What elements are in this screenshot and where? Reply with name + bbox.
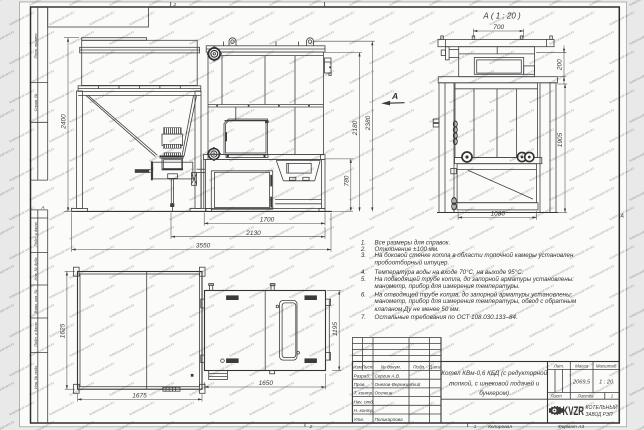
svg-text:Инв. № подл.: Инв. № подл.	[33, 365, 38, 389]
svg-text:1905: 1905	[557, 132, 564, 147]
svg-text:Поликарпова: Поликарпова	[375, 417, 404, 422]
svg-text:Лист: Лист	[361, 364, 374, 369]
svg-text:6.: 6.	[361, 292, 366, 299]
svg-text:3550: 3550	[196, 243, 211, 250]
svg-text:2069,5: 2069,5	[572, 380, 591, 386]
svg-text:Утв.: Утв.	[354, 417, 364, 422]
svg-text:Сергин А.В.: Сергин А.В.	[375, 373, 401, 378]
svg-text:1700: 1700	[260, 217, 275, 224]
svg-text:Масштаб: Масштаб	[596, 363, 617, 368]
svg-text:Взам. инв. №: Взам. инв. №	[33, 289, 38, 314]
svg-text:3.: 3.	[361, 252, 366, 259]
svg-text:7.: 7.	[361, 314, 366, 321]
svg-text:2380: 2380	[365, 115, 372, 131]
svg-text:1650: 1650	[259, 380, 274, 387]
svg-text:2400: 2400	[60, 114, 67, 130]
svg-text:бункером): бункером)	[479, 389, 509, 397]
svg-text:А: А	[41, 205, 45, 210]
svg-text:5.: 5.	[361, 276, 366, 283]
svg-text:манометр, прибор для измерения: манометр, прибор для измерения температу…	[375, 298, 577, 305]
svg-text:Нач. отд.: Нач. отд.	[354, 399, 375, 404]
svg-text:700: 700	[493, 24, 504, 31]
svg-text:200: 200	[557, 59, 564, 71]
svg-text:2: 2	[309, 424, 313, 430]
svg-text:780: 780	[343, 175, 350, 186]
svg-text:1675: 1675	[132, 393, 147, 400]
svg-text:Перв. примен.: Перв. примен.	[33, 33, 38, 59]
svg-text:2: 2	[173, 2, 177, 8]
svg-text:манометр, прибор для измерения: манометр, прибор для измерения температу…	[375, 283, 520, 290]
svg-text:Справ. №: Справ. №	[33, 93, 38, 111]
